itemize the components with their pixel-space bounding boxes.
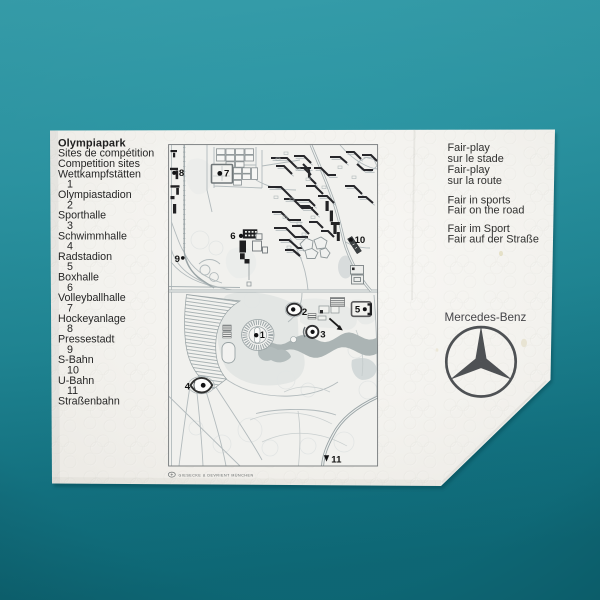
svg-text:9: 9 xyxy=(175,254,180,265)
svg-text:Mercedes-Benz: Mercedes-Benz xyxy=(445,311,527,324)
svg-text:4: 4 xyxy=(185,381,191,392)
svg-text:Fair auf der Straße: Fair auf der Straße xyxy=(448,234,539,246)
svg-text:5: 5 xyxy=(355,305,361,316)
svg-text:6: 6 xyxy=(230,231,235,242)
svg-text:2: 2 xyxy=(302,307,307,318)
svg-text:sur la route: sur la route xyxy=(448,175,502,187)
svg-text:3: 3 xyxy=(320,329,325,340)
svg-text:7: 7 xyxy=(224,168,229,179)
svg-text:GIESECKE & DEVRIENT MÜNCHEN: GIESECKE & DEVRIENT MÜNCHEN xyxy=(179,473,254,477)
svg-text:11: 11 xyxy=(331,454,342,465)
svg-text:8: 8 xyxy=(179,168,185,179)
svg-text:Sporthalle: Sporthalle xyxy=(58,210,106,222)
svg-text:10: 10 xyxy=(355,235,366,246)
svg-text:Straßenbahn: Straßenbahn xyxy=(58,395,120,407)
svg-text:Boxhalle: Boxhalle xyxy=(58,272,99,284)
svg-text:1: 1 xyxy=(260,330,265,340)
svg-text:Fair on the road: Fair on the road xyxy=(448,205,525,217)
